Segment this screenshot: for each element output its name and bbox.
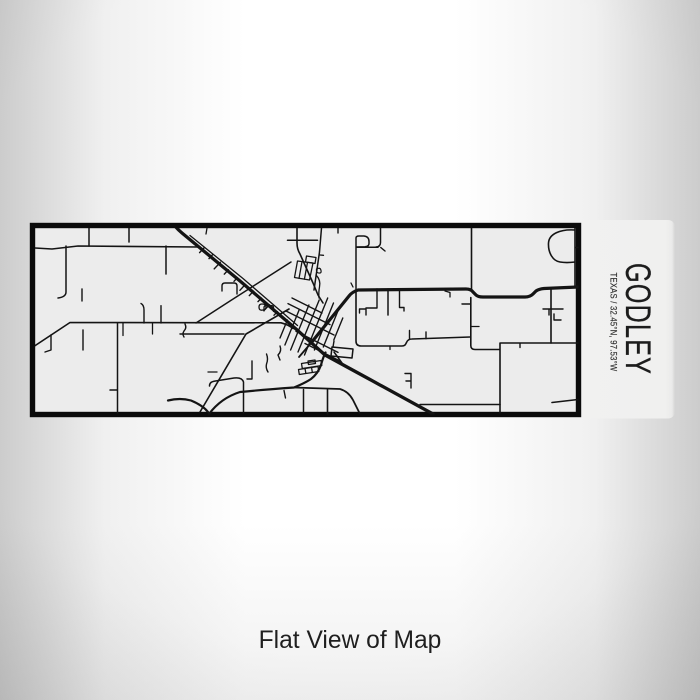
svg-text:Flat View of Map: Flat View of Map: [259, 627, 442, 654]
svg-text:GODLEY: GODLEY: [618, 263, 657, 375]
svg-text:TEXAS / 32.45°N, 97.53°W: TEXAS / 32.45°N, 97.53°W: [608, 273, 619, 372]
